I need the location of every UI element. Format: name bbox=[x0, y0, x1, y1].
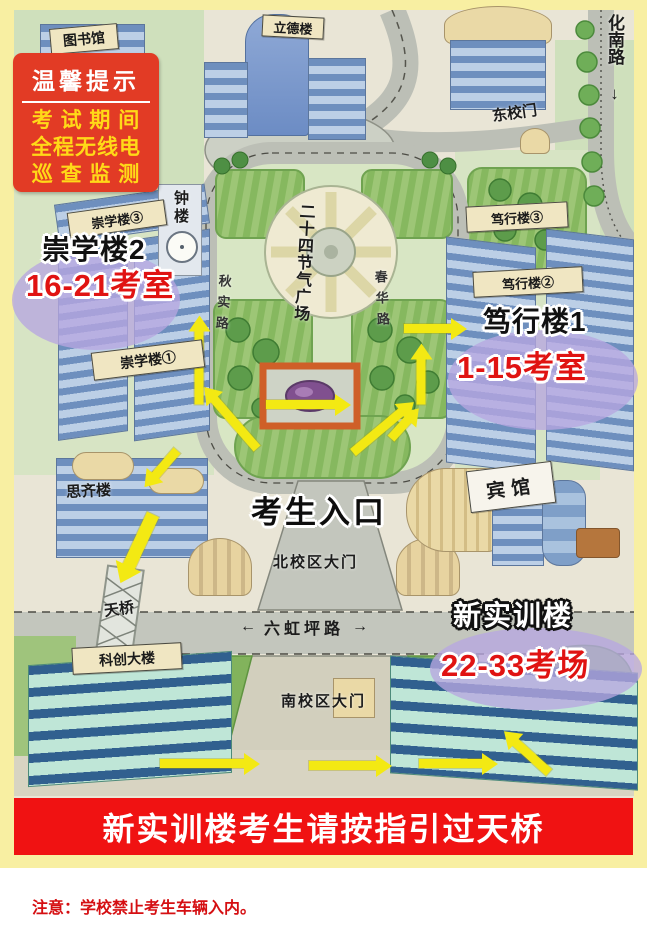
exam-tip-box: 温馨提示 考 试 期 间 全程无线电 巡 查 监 测 bbox=[13, 53, 159, 192]
tip-line-3: 巡 查 监 测 bbox=[13, 161, 159, 188]
shixun-highlight-ellipse bbox=[430, 628, 642, 710]
duxing1-highlight-ellipse bbox=[448, 330, 638, 430]
tip-line-1: 考 试 期 间 bbox=[13, 107, 159, 134]
tip-title: 温馨提示 bbox=[13, 62, 159, 96]
chongxue2-highlight-ellipse bbox=[12, 250, 180, 350]
tip-divider bbox=[22, 101, 150, 103]
exam-campus-map-page: 图书馆 立德楼 东校门 化南路 ↓ 崇学楼③ 钟楼 崇学楼① 秋实路 春华路 二… bbox=[0, 0, 647, 926]
bridge-instruction-banner: 新实训楼考生请按指引过天桥 bbox=[14, 798, 633, 855]
vehicle-ban-note: 注意：学校禁止考生车辆入内。 bbox=[32, 894, 256, 918]
banner-text: 新实训楼考生请按指引过天桥 bbox=[102, 804, 544, 850]
tip-line-2: 全程无线电 bbox=[13, 134, 159, 161]
